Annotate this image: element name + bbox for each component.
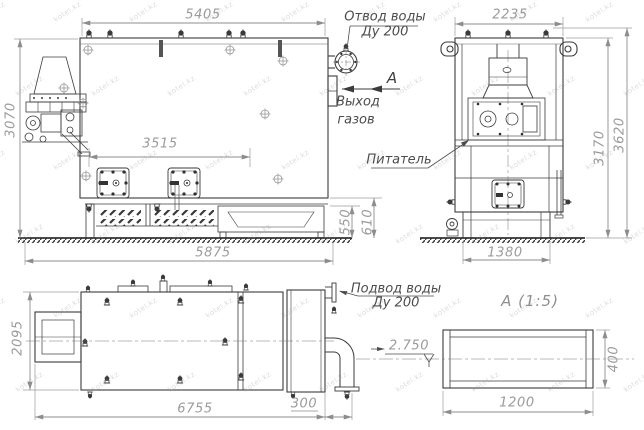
dim-plan-outlet-offset: 300 [291, 397, 318, 412]
label-water-inlet-line1: Подвод воды [351, 282, 441, 297]
label-water-outlet-line2: Ду 200 [362, 25, 409, 40]
access-door [97, 168, 129, 198]
section-view-title: А (1:5) [501, 292, 559, 310]
dim-side-height: 3070 [4, 102, 19, 137]
dim-side-doors-width: 3515 [142, 137, 177, 152]
label-leaders [291, 26, 469, 411]
outlet-elbow-pipe [325, 338, 359, 400]
dim-section-height: 400 [607, 346, 622, 373]
section-arrow-letter: А [387, 69, 397, 87]
dim-plan-depth: 2095 [11, 320, 26, 355]
technical-drawing-canvas [0, 0, 644, 430]
dim-section-width: 1200 [499, 396, 534, 411]
grate-base [85, 185, 328, 238]
vent-marks [59, 45, 289, 185]
elevation-mark-value: 2.750 [389, 339, 429, 354]
plan-view [26, 274, 359, 399]
label-gas-exit-line2: газов [337, 113, 374, 128]
label-feeder: Питатель [366, 153, 431, 168]
dim-front-height-body: 3170 [593, 130, 608, 165]
dim-side-grate-height: 550 [339, 209, 354, 236]
extension-lines [14, 17, 632, 420]
label-gas-exit-line1: Выход [336, 95, 380, 110]
water-inlet-stub [325, 283, 337, 313]
front-view [420, 30, 585, 244]
pump [447, 219, 458, 230]
side-top-valves [86, 30, 247, 39]
water-outlet-flange [328, 43, 360, 76]
drawing-sheet: 5405 3070 3515 5875 550 610 Отвод воды Д… [0, 0, 644, 430]
access-door [168, 168, 200, 198]
dim-front-width-top: 2235 [492, 8, 527, 23]
dim-plan-length: 6755 [177, 402, 212, 417]
dim-side-width-bottom: 5875 [195, 246, 230, 261]
label-water-inlet-line2: Ду 200 [373, 296, 420, 311]
dim-front-width-bottom: 1380 [487, 246, 522, 261]
dim-front-height-total: 3620 [613, 117, 628, 152]
dim-side-width-top: 5405 [185, 8, 220, 23]
label-water-outlet-line1: Отвод воды [344, 10, 425, 25]
dim-side-base-height: 610 [361, 209, 376, 236]
feeder-machinery [468, 98, 545, 140]
